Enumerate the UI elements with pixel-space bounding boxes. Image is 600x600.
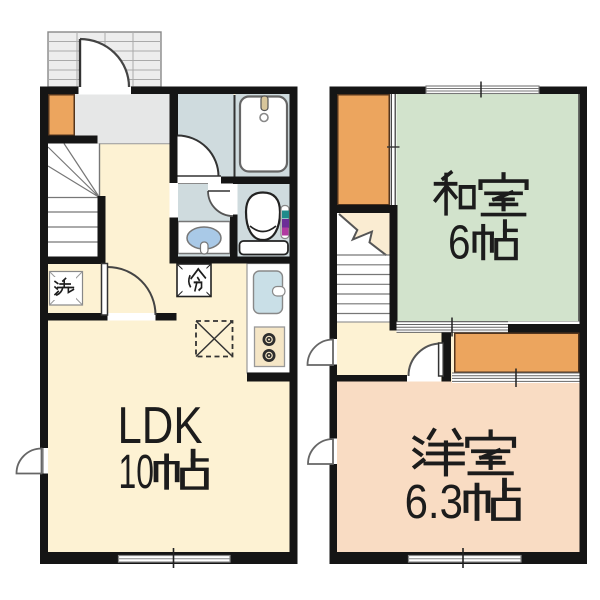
- svg-text:10: 10: [119, 445, 155, 499]
- svg-text:6.3: 6.3: [405, 476, 463, 529]
- svg-text:6: 6: [448, 217, 471, 270]
